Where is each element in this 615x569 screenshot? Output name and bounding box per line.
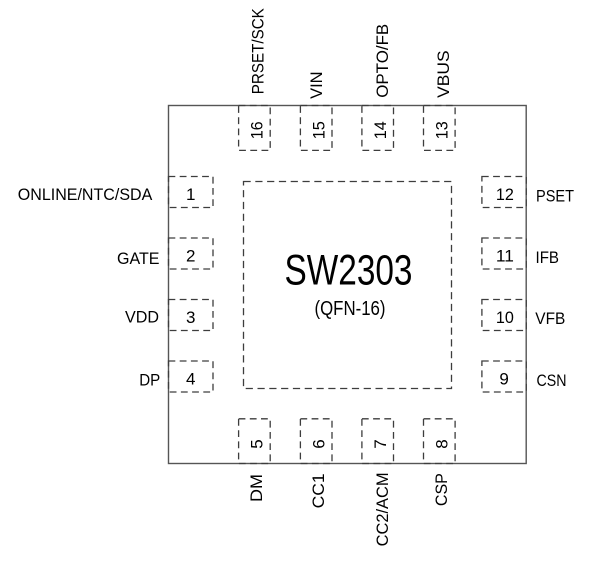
svg-text:9: 9 — [499, 370, 508, 389]
svg-text:(QFN-16): (QFN-16) — [315, 297, 386, 320]
svg-text:VIN: VIN — [307, 71, 326, 99]
svg-text:1: 1 — [186, 185, 195, 204]
svg-text:16: 16 — [248, 121, 267, 139]
svg-text:2: 2 — [186, 247, 195, 266]
svg-text:PSET: PSET — [536, 187, 574, 206]
svg-text:8: 8 — [433, 439, 452, 448]
svg-text:CSP: CSP — [432, 473, 451, 506]
svg-text:7: 7 — [371, 439, 390, 448]
svg-text:14: 14 — [371, 121, 390, 139]
svg-text:SW2303: SW2303 — [285, 246, 413, 294]
svg-text:VDD: VDD — [125, 308, 159, 327]
svg-text:IFB: IFB — [536, 248, 560, 267]
svg-text:11: 11 — [496, 247, 514, 266]
svg-text:OPTO/FB: OPTO/FB — [373, 24, 392, 98]
svg-text:5: 5 — [248, 439, 267, 448]
svg-text:DP: DP — [139, 371, 160, 390]
svg-text:13: 13 — [433, 121, 452, 139]
svg-text:3: 3 — [186, 308, 195, 327]
svg-text:6: 6 — [310, 439, 329, 448]
svg-text:12: 12 — [496, 185, 514, 204]
svg-text:CC2/ACM: CC2/ACM — [373, 472, 392, 546]
svg-text:CC1: CC1 — [309, 473, 328, 508]
svg-text:GATE: GATE — [117, 249, 160, 268]
svg-text:ONLINE/NTC/SDA: ONLINE/NTC/SDA — [18, 185, 153, 204]
svg-text:VBUS: VBUS — [434, 50, 453, 98]
svg-text:15: 15 — [310, 121, 329, 139]
svg-text:VFB: VFB — [535, 309, 565, 328]
svg-text:10: 10 — [496, 308, 514, 327]
svg-text:4: 4 — [186, 370, 195, 389]
svg-text:CSN: CSN — [537, 371, 567, 390]
svg-text:DM: DM — [247, 474, 266, 502]
svg-text:PRSET/SCK: PRSET/SCK — [248, 8, 267, 95]
